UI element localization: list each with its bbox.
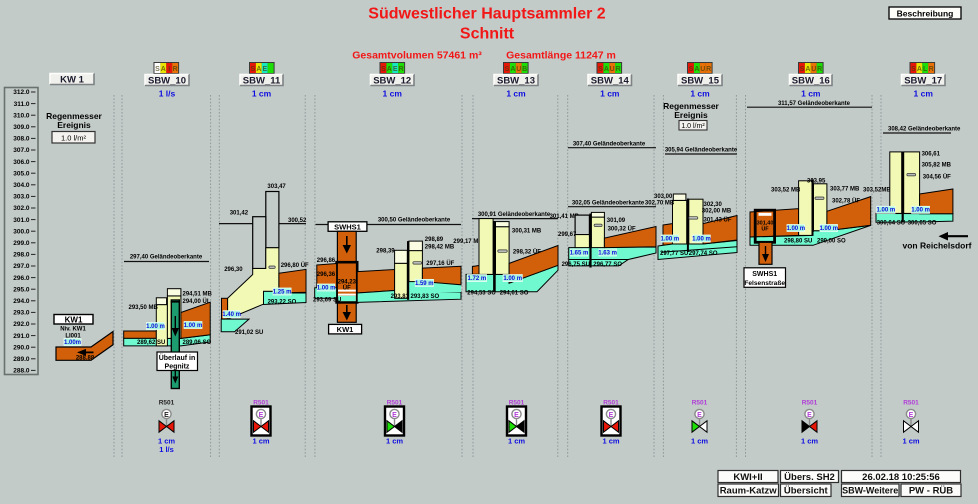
svg-text:297,16 ÜF: 297,16 ÜF <box>426 260 454 267</box>
svg-text:293,22 SO: 293,22 SO <box>268 299 297 305</box>
svg-text:308,42 Geländeoberkante: 308,42 Geländeoberkante <box>888 127 961 133</box>
svg-text:U: U <box>516 66 521 73</box>
svg-text:302.0: 302.0 <box>13 205 30 212</box>
svg-text:300,31 MB: 300,31 MB <box>512 228 542 234</box>
svg-text:305,94 Geländeoberkante: 305,94 Geländeoberkante <box>665 148 738 154</box>
svg-text:SBW-Weitere: SBW-Weitere <box>842 486 898 496</box>
svg-text:1 cm: 1 cm <box>252 437 269 446</box>
svg-text:Ereignis: Ereignis <box>57 120 91 130</box>
svg-text:1.65 m: 1.65 m <box>570 250 589 256</box>
svg-text:300,50 Geländeoberkante: 300,50 Geländeoberkante <box>378 218 451 224</box>
svg-text:1 cm: 1 cm <box>914 89 934 99</box>
svg-text:S: S <box>800 66 805 73</box>
svg-text:1.00 m: 1.00 m <box>786 226 805 232</box>
svg-text:298,42 MB: 298,42 MB <box>425 244 455 250</box>
svg-text:1.0 l/m²: 1.0 l/m² <box>681 123 705 130</box>
svg-text:294,53 SU: 294,53 SU <box>467 291 495 297</box>
svg-text:1.00 m: 1.00 m <box>819 226 838 232</box>
svg-text:294.0: 294.0 <box>13 298 30 305</box>
svg-text:1.25 m: 1.25 m <box>273 289 292 295</box>
svg-text:298.0: 298.0 <box>13 252 30 259</box>
svg-text:310.0: 310.0 <box>13 112 30 119</box>
svg-text:1.00m: 1.00m <box>64 340 81 346</box>
svg-text:Übersicht: Übersicht <box>784 486 829 497</box>
svg-text:A: A <box>387 66 392 73</box>
svg-text:Ereignis: Ereignis <box>674 110 708 120</box>
svg-text:SBW_17: SBW_17 <box>904 75 942 86</box>
svg-text:292.0: 292.0 <box>13 321 30 328</box>
svg-text:301.0: 301.0 <box>13 217 30 224</box>
svg-text:290.0: 290.0 <box>13 344 30 351</box>
svg-text:293.0: 293.0 <box>13 310 30 317</box>
svg-text:1.72 m: 1.72 m <box>468 276 487 282</box>
svg-text:296.0: 296.0 <box>13 275 30 282</box>
svg-text:1 cm: 1 cm <box>902 437 919 446</box>
svg-text:1 cm: 1 cm <box>602 437 619 446</box>
svg-text:298,39: 298,39 <box>376 248 395 254</box>
svg-text:E: E <box>262 66 267 73</box>
svg-text:1.59 m: 1.59 m <box>415 281 434 287</box>
svg-text:E: E <box>393 66 398 73</box>
svg-text:A: A <box>694 66 699 73</box>
svg-text:1.00 m: 1.00 m <box>184 323 203 329</box>
svg-text:1.00 m: 1.00 m <box>911 208 930 214</box>
svg-text:1.63 m: 1.63 m <box>598 250 617 256</box>
svg-text:U: U <box>700 66 705 73</box>
svg-text:289.0: 289.0 <box>13 356 30 363</box>
svg-text:296,30: 296,30 <box>224 267 243 273</box>
svg-text:R: R <box>929 66 934 73</box>
svg-text:1 cm: 1 cm <box>252 89 272 99</box>
svg-text:289,06 SO: 289,06 SO <box>183 340 212 346</box>
svg-text:302,70 MB: 302,70 MB <box>645 201 675 207</box>
svg-text:S: S <box>155 66 160 73</box>
svg-text:296,75 SU: 296,75 SU <box>562 262 590 268</box>
svg-text:300,32 ÜF: 300,32 ÜF <box>608 226 636 233</box>
svg-text:301,42: 301,42 <box>230 211 249 217</box>
svg-text:305,82 MB: 305,82 MB <box>922 163 952 169</box>
svg-text:297,40 Geländeoberkante: 297,40 Geländeoberkante <box>130 255 203 261</box>
svg-text:Beschreibung: Beschreibung <box>897 9 954 19</box>
svg-text:293,69 SU: 293,69 SU <box>313 298 341 304</box>
svg-text:Überlauf in: Überlauf in <box>159 353 196 362</box>
svg-text:1.00 m: 1.00 m <box>317 285 336 291</box>
svg-text:R: R <box>616 66 621 73</box>
svg-text:R501: R501 <box>159 400 175 407</box>
svg-text:R: R <box>399 66 404 73</box>
svg-text:293,81: 293,81 <box>391 294 410 300</box>
svg-text:300,52: 300,52 <box>288 218 307 224</box>
svg-text:303,52 MB: 303,52 MB <box>771 188 801 194</box>
svg-text:Übers. SH2: Übers. SH2 <box>784 472 835 483</box>
svg-text:I: I <box>168 66 170 73</box>
svg-text:S: S <box>505 66 510 73</box>
svg-text:298,80 SU: 298,80 SU <box>784 238 812 244</box>
svg-text:26.02.18 10:25:56: 26.02.18 10:25:56 <box>862 472 940 483</box>
svg-text:306.0: 306.0 <box>13 159 30 166</box>
svg-text:KW 1: KW 1 <box>60 74 84 85</box>
svg-text:von Reichelsdorf: von Reichelsdorf <box>903 241 972 251</box>
svg-text:300,65 SO: 300,65 SO <box>908 220 937 226</box>
svg-text:SBW_12: SBW_12 <box>373 75 411 86</box>
svg-text:293,50 MB: 293,50 MB <box>129 305 159 311</box>
svg-text:296,77 SO: 296,77 SO <box>593 262 622 268</box>
svg-text:R: R <box>173 66 178 73</box>
svg-text:296,86: 296,86 <box>317 258 336 264</box>
svg-text:299,00 SO: 299,00 SO <box>817 238 846 244</box>
svg-text:E: E <box>514 412 519 419</box>
svg-text:299,67: 299,67 <box>558 232 577 238</box>
svg-text:1 cm: 1 cm <box>801 437 818 446</box>
svg-text:294,61 SO: 294,61 SO <box>500 291 529 297</box>
svg-text:SBW_15: SBW_15 <box>681 75 720 86</box>
svg-text:A: A <box>805 66 810 73</box>
svg-text:301,09: 301,09 <box>607 218 626 224</box>
svg-text:ÜF: ÜF <box>343 285 351 292</box>
svg-text:U: U <box>811 66 816 73</box>
svg-text:R: R <box>706 66 711 73</box>
svg-text:SWHS1: SWHS1 <box>334 223 361 232</box>
svg-text:E: E <box>909 412 914 419</box>
svg-text:SBW_11: SBW_11 <box>243 75 281 86</box>
svg-text:302,05 Geländeoberkante: 302,05 Geländeoberkante <box>572 201 645 207</box>
svg-text:R501: R501 <box>802 400 818 407</box>
svg-text:A: A <box>510 66 515 73</box>
svg-text:301,43 ÜF: 301,43 ÜF <box>704 217 732 224</box>
svg-text:1.00 m: 1.00 m <box>692 236 711 242</box>
svg-text:S: S <box>689 66 694 73</box>
svg-text:SBW_16: SBW_16 <box>792 75 830 86</box>
svg-text:1.00 m: 1.00 m <box>877 208 896 214</box>
svg-text:1 cm: 1 cm <box>506 89 526 99</box>
svg-text:288.0: 288.0 <box>13 368 30 375</box>
svg-text:296,80 ÜF: 296,80 ÜF <box>281 262 309 269</box>
svg-text:297.0: 297.0 <box>13 263 30 270</box>
svg-text:1.00 m: 1.00 m <box>503 276 522 282</box>
svg-text:298,89: 298,89 <box>425 237 444 243</box>
svg-text:E: E <box>697 412 702 419</box>
svg-text:E: E <box>259 412 264 419</box>
svg-text:288.88: 288.88 <box>76 356 95 362</box>
svg-text:303,47: 303,47 <box>267 184 286 190</box>
svg-text:ÜF: ÜF <box>761 226 769 233</box>
svg-text:KW1: KW1 <box>337 325 354 334</box>
svg-text:1 cm: 1 cm <box>386 437 403 446</box>
svg-text:Schnitt: Schnitt <box>460 26 515 43</box>
svg-text:295.0: 295.0 <box>13 286 30 293</box>
svg-text:E: E <box>609 412 614 419</box>
svg-text:299.0: 299.0 <box>13 240 30 247</box>
svg-text:303,52MB: 303,52MB <box>863 188 891 194</box>
svg-text:S: S <box>911 66 916 73</box>
svg-text:294,51 MB: 294,51 MB <box>183 292 213 298</box>
svg-text:1 cm: 1 cm <box>383 89 403 99</box>
svg-text:1 cm: 1 cm <box>600 89 620 99</box>
svg-text:Raum-Katzw: Raum-Katzw <box>720 486 778 497</box>
svg-text:304.0: 304.0 <box>13 182 30 189</box>
svg-text:R501: R501 <box>903 400 919 407</box>
svg-text:Gesamtlänge 11247 m: Gesamtlänge 11247 m <box>506 50 616 62</box>
svg-text:293,83 SO: 293,83 SO <box>411 294 440 300</box>
svg-text:S: S <box>381 66 386 73</box>
svg-text:309.0: 309.0 <box>13 124 30 131</box>
svg-text:300.0: 300.0 <box>13 228 30 235</box>
svg-text:E: E <box>164 412 169 419</box>
svg-text:B: B <box>522 66 527 73</box>
svg-text:Pegnitz: Pegnitz <box>165 364 190 371</box>
svg-text:SBW_13: SBW_13 <box>497 75 535 86</box>
svg-text:305.0: 305.0 <box>13 170 30 177</box>
svg-text:308.0: 308.0 <box>13 136 30 143</box>
svg-text:PW - RÜB: PW - RÜB <box>909 486 953 497</box>
svg-text:302,78 ÜF: 302,78 ÜF <box>832 198 860 205</box>
svg-text:E: E <box>392 412 397 419</box>
svg-text:S: S <box>598 66 603 73</box>
svg-text:302,30: 302,30 <box>704 202 723 208</box>
svg-text:303,00: 303,00 <box>654 194 673 200</box>
svg-text:297,77 SU: 297,77 SU <box>660 251 688 257</box>
svg-text:1 l/s: 1 l/s <box>159 89 176 99</box>
svg-text:KW1: KW1 <box>65 315 83 324</box>
svg-text:291,02 SU: 291,02 SU <box>235 330 263 336</box>
svg-text:1.00 m: 1.00 m <box>661 236 680 242</box>
svg-text:1 l/s: 1 l/s <box>159 445 174 454</box>
svg-text:SBW_10: SBW_10 <box>148 75 186 86</box>
svg-text:303,77 MB: 303,77 MB <box>830 187 860 193</box>
svg-text:SBW_14: SBW_14 <box>591 75 630 86</box>
svg-text:1 cm: 1 cm <box>691 437 708 446</box>
svg-text:289,62 SU: 289,62 SU <box>137 340 165 346</box>
svg-text:U: U <box>610 66 615 73</box>
svg-text:L: L <box>923 66 928 73</box>
svg-text:300,64 SU: 300,64 SU <box>877 220 905 226</box>
svg-text:A: A <box>256 66 261 73</box>
svg-text:294,00 ÜL: 294,00 ÜL <box>183 298 211 305</box>
svg-text:306,61: 306,61 <box>922 152 941 158</box>
svg-text:Niv. KW1: Niv. KW1 <box>60 327 86 333</box>
svg-text:A: A <box>917 66 922 73</box>
svg-text:312.0: 312.0 <box>13 89 30 96</box>
svg-text:300,91 Geländeoberkante: 300,91 Geländeoberkante <box>478 212 551 218</box>
svg-text:Gesamtvolumen 57461 m³: Gesamtvolumen 57461 m³ <box>352 50 482 62</box>
svg-text:A: A <box>604 66 609 73</box>
svg-text:303,95: 303,95 <box>807 178 826 184</box>
svg-text:304,56 ÜF: 304,56 ÜF <box>923 174 951 181</box>
svg-text:1.00 m: 1.00 m <box>146 324 165 330</box>
svg-text:Felsenstraße: Felsenstraße <box>744 280 785 287</box>
svg-text:S: S <box>251 66 256 73</box>
svg-text:307,40 Geländeoberkante: 307,40 Geländeoberkante <box>573 141 646 147</box>
svg-text:1 cm: 1 cm <box>801 89 821 99</box>
svg-text:Südwestlicher Hauptsammler 2: Südwestlicher Hauptsammler 2 <box>368 6 606 23</box>
svg-text:E: E <box>807 412 812 419</box>
svg-text:291.0: 291.0 <box>13 333 30 340</box>
svg-text:296,36: 296,36 <box>317 272 336 278</box>
svg-text:311.0: 311.0 <box>14 101 30 108</box>
svg-text:1 cm: 1 cm <box>690 89 710 99</box>
svg-text:1.0 l/m²: 1.0 l/m² <box>61 134 87 143</box>
svg-text:KWI+II: KWI+II <box>733 472 762 483</box>
svg-text:A: A <box>161 66 166 73</box>
svg-text:311,57 Geländeoberkante: 311,57 Geländeoberkante <box>778 101 851 107</box>
svg-text:R501: R501 <box>692 400 708 407</box>
svg-text:302,00 MB: 302,00 MB <box>702 208 732 214</box>
svg-text:R: R <box>817 66 822 73</box>
svg-text:1.40 m: 1.40 m <box>222 312 241 318</box>
svg-text:297,74 SO: 297,74 SO <box>689 251 718 257</box>
svg-text:1 cm: 1 cm <box>508 437 525 446</box>
svg-text:307.0: 307.0 <box>13 147 30 154</box>
svg-text:298,32 ÜF: 298,32 ÜF <box>513 249 541 256</box>
svg-text:SWHS1: SWHS1 <box>752 271 777 278</box>
svg-text:303.0: 303.0 <box>13 194 30 201</box>
